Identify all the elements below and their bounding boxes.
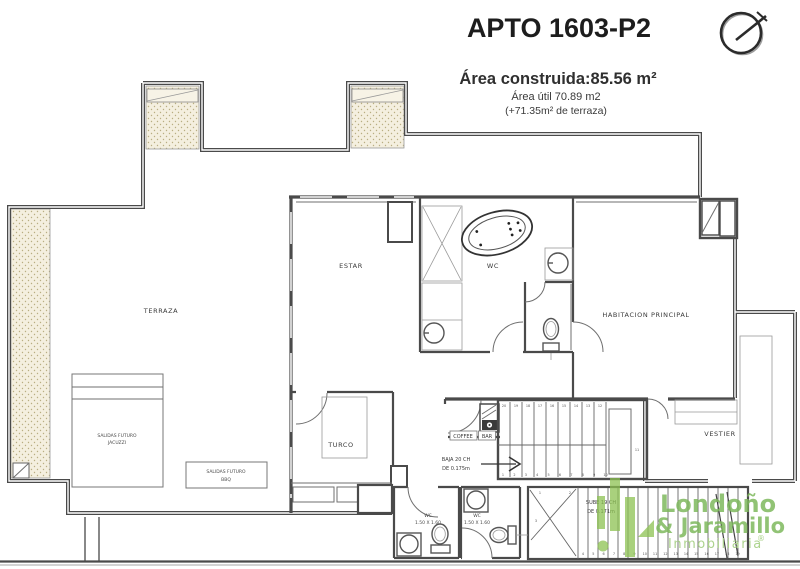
sink-icon (400, 535, 418, 553)
logo-line3: Inmobiliaria (668, 537, 763, 552)
door-arc (448, 400, 481, 433)
stair-number: 2 (569, 491, 571, 495)
bbq-outlet-box: SALIDAS FUTURO BBQ (186, 462, 267, 488)
stair-number: 6 (559, 473, 561, 477)
stair-number: 17 (715, 552, 719, 556)
stair-number: 10 (643, 552, 647, 556)
bench (293, 487, 334, 502)
stair-number: 5 (548, 473, 550, 477)
stair-upper-top-numbers: 201918171615141312 (502, 404, 602, 408)
stair-number: 1 (539, 491, 541, 495)
jacuzzi-outlet-box: SALIDAS FUTURO JACUZZI (72, 374, 163, 487)
wc2-dim-label: 1.50 X 1.60 (464, 520, 490, 526)
bbq-label-1: SALIDAS FUTURO (206, 469, 246, 475)
stair-number: 19 (514, 404, 518, 408)
closet (740, 336, 772, 464)
door-arc (573, 322, 603, 352)
stair-number: 12 (663, 552, 667, 556)
header: APTO 1603-P2 Área construida:85.56 m² Ár… (459, 12, 767, 117)
stair-number: 14 (684, 552, 688, 556)
baja-label-1: BAJA 20 CH (442, 457, 471, 463)
stair-number: 6 (603, 552, 605, 556)
door-arc (648, 399, 668, 419)
wc1-label: WC (424, 513, 432, 519)
logo-bar-icon (625, 497, 635, 557)
stair-lower-numbers: 45678910111213141516171819 (582, 552, 740, 556)
stair-number: 11 (653, 552, 657, 556)
wc-small-1: WC 1.50 X 1.60 (394, 487, 459, 558)
room-label-vestier: VESTIER (704, 430, 735, 438)
coffee-label: COFFEE (453, 434, 473, 440)
estar-wc-zone: ESTAR WC (339, 197, 603, 360)
stair-number: 7 (570, 473, 572, 477)
stair-number: 4 (536, 473, 538, 477)
jacuzzi-label-2: JACUZZI (107, 440, 126, 446)
jacuzzi-label-1: SALIDAS FUTURO (97, 433, 137, 439)
logo-dot-icon (598, 541, 609, 552)
pilaster (391, 466, 407, 487)
stair-number: 16 (550, 404, 554, 408)
wardrobe (422, 206, 462, 350)
wc-small-2: WC 1.50 X 1.60 (461, 487, 528, 558)
logo-registered-mark: ® (757, 534, 765, 543)
column (388, 202, 412, 242)
area-terraza-label: (+71.35m² de terraza) (505, 105, 607, 117)
sink-icon (467, 491, 485, 509)
stair-number: 18 (725, 552, 729, 556)
stair-number: 11 (635, 448, 639, 452)
room-label-terraza: TERRAZA (143, 307, 178, 315)
ground-lines (0, 562, 800, 566)
shaft-box (700, 199, 737, 238)
page-title: APTO 1603-P2 (467, 13, 651, 43)
door-arc (462, 528, 492, 558)
floorplan-drawing: APTO 1603-P2 Área construida:85.56 m² Ár… (0, 0, 800, 569)
stair-number: 4 (582, 552, 584, 556)
stair-number: 14 (574, 404, 578, 408)
stair-number: 5 (592, 552, 594, 556)
door-arc (525, 282, 545, 302)
stair-number: 8 (582, 473, 584, 477)
stair-number: 9 (593, 473, 595, 477)
stair-number: 12 (598, 404, 602, 408)
terrace: SALIDAS FUTURO JACUZZI SALIDAS FUTURO BB… (9, 83, 700, 562)
logo-triangle-icon (638, 520, 654, 537)
stair-number: 13 (586, 404, 590, 408)
stair-number: 15 (562, 404, 566, 408)
coffee-bar-nook: COFFEE BAR (445, 399, 500, 440)
logo-bar-icon (610, 478, 620, 531)
stair-number: 7 (613, 552, 615, 556)
stair-number: 2 (513, 473, 515, 477)
column-lines (85, 517, 99, 562)
stair-number: 18 (526, 404, 530, 408)
stair-number: 3 (525, 473, 527, 477)
stair-number: 8 (623, 552, 625, 556)
company-logo: Londoño & Jaramillo Inmobiliaria ® (597, 478, 785, 557)
stair-number: 17 (538, 404, 542, 408)
stair-number: 16 (704, 552, 708, 556)
stair-number: 10 (603, 473, 607, 477)
stair-number: 20 (502, 404, 506, 408)
turco-zone: TURCO (291, 392, 407, 513)
wc2-label: WC (473, 513, 481, 519)
stair-number: 13 (674, 552, 678, 556)
planter-boxes (11, 86, 404, 478)
corner-pillar (358, 485, 392, 513)
stair-number: 15 (694, 552, 698, 556)
room-label-habitacion: HABITACION PRINCIPAL (602, 311, 689, 319)
toilet-compartment (525, 282, 573, 360)
stair-number: 3 (535, 519, 537, 523)
logo-line2: & Jaramillo (655, 514, 785, 538)
area-util-label: Área útil 70.89 m2 (511, 90, 600, 103)
stair-number: 1 (502, 473, 504, 477)
stair-number: 19 (735, 552, 739, 556)
door-arc (408, 487, 438, 517)
room-label-turco: TURCO (327, 441, 354, 449)
logo-bar-icon (597, 496, 605, 529)
bathtub-icon (457, 203, 538, 263)
stair-upper-bottom-numbers: 12345678910 (502, 473, 608, 477)
north-indicator-icon (721, 12, 767, 55)
room-label-wc-principal: WC (487, 262, 499, 270)
area-construida-label: Área construida:85.56 m² (459, 69, 657, 88)
room-label-estar: ESTAR (339, 262, 363, 270)
habitacion-vestier-zone: HABITACION PRINCIPAL VESTIER (602, 311, 772, 464)
bbq-label-2: BBQ (221, 477, 231, 483)
bar-label: BAR (482, 434, 493, 440)
door-arc (493, 322, 523, 352)
baja-label-2: DE 0.175m (442, 466, 470, 472)
floorplan-page: APTO 1603-P2 Área construida:85.56 m² Ár… (0, 0, 800, 569)
apartment-walls (289, 197, 795, 513)
